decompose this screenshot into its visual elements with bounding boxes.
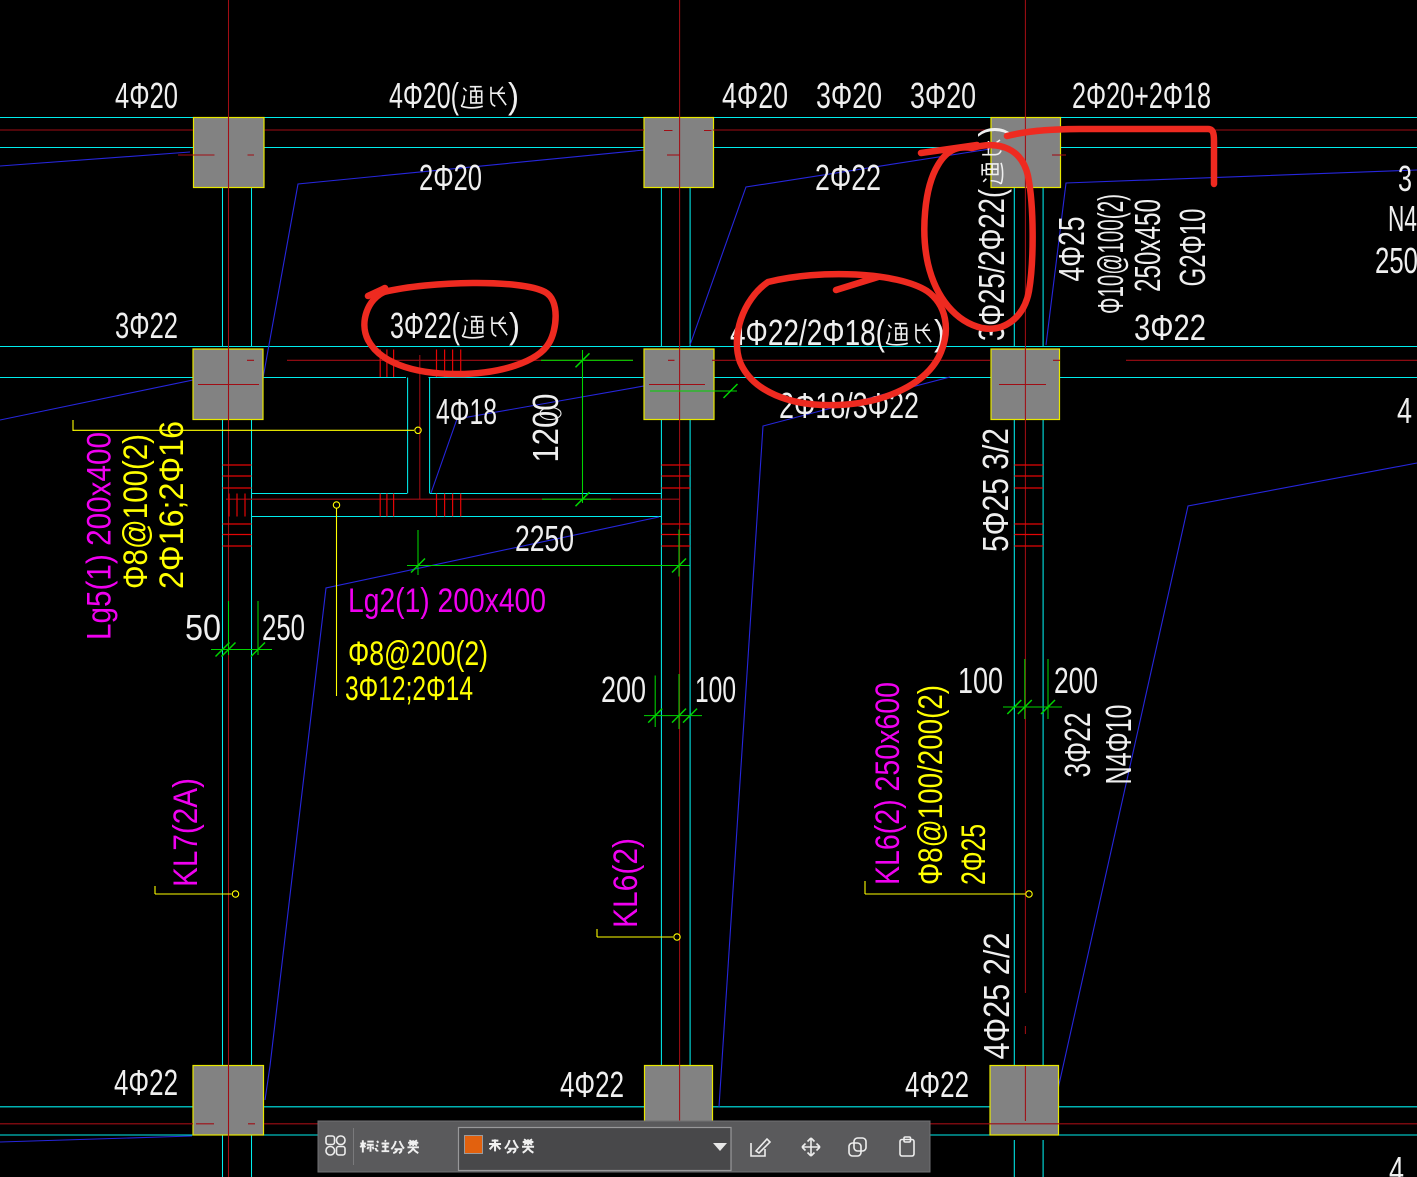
svg-text:250: 250	[1375, 240, 1417, 281]
svg-text:100: 100	[695, 669, 736, 710]
svg-text:): )	[509, 305, 520, 346]
svg-text:200: 200	[1054, 660, 1098, 701]
svg-text:5Φ25 3/2: 5Φ25 3/2	[975, 428, 1016, 552]
svg-text:KL6(2): KL6(2)	[607, 838, 645, 928]
svg-text:3Φ22: 3Φ22	[1134, 307, 1206, 348]
svg-text:2Φ20: 2Φ20	[419, 157, 482, 198]
svg-text:Lg5(1) 200x400: Lg5(1) 200x400	[81, 432, 119, 640]
svg-text:4Φ22: 4Φ22	[560, 1064, 624, 1105]
svg-text:2Φ22: 2Φ22	[815, 157, 881, 198]
svg-text:4: 4	[1389, 1149, 1404, 1177]
svg-text:3Φ22(: 3Φ22(	[390, 305, 460, 346]
svg-text:Φ8@100(2): Φ8@100(2)	[117, 434, 155, 589]
svg-text:4: 4	[1397, 390, 1412, 431]
svg-text:3Φ20: 3Φ20	[816, 75, 882, 116]
svg-text:2Φ16;2Φ16: 2Φ16;2Φ16	[153, 421, 191, 589]
svg-text:250: 250	[262, 607, 305, 648]
svg-text:1200: 1200	[525, 394, 566, 463]
svg-text:4Φ25: 4Φ25	[1051, 217, 1092, 282]
svg-text:4Φ20: 4Φ20	[722, 75, 788, 116]
svg-text:4Φ22: 4Φ22	[905, 1064, 969, 1105]
svg-text:N4Φ10: N4Φ10	[1098, 705, 1139, 785]
svg-text:2Φ25: 2Φ25	[955, 824, 993, 885]
svg-text:100: 100	[958, 660, 1003, 701]
svg-text:2Φ20+2Φ18: 2Φ20+2Φ18	[1072, 75, 1211, 116]
svg-text:3Φ20: 3Φ20	[910, 75, 976, 116]
svg-text:Lg2(1) 200x400: Lg2(1) 200x400	[348, 582, 546, 620]
svg-text:4Φ20: 4Φ20	[115, 75, 178, 116]
svg-text:Φ8@100/200(2): Φ8@100/200(2)	[912, 685, 950, 885]
svg-text:N4: N4	[1388, 198, 1417, 239]
svg-text:50: 50	[185, 607, 221, 648]
svg-text:3Φ12;2Φ14: 3Φ12;2Φ14	[345, 670, 473, 708]
svg-text:200: 200	[601, 669, 646, 710]
svg-text:3: 3	[1398, 158, 1412, 199]
svg-text:4Φ25 2/2: 4Φ25 2/2	[976, 933, 1017, 1060]
svg-text:4Φ22/2Φ18(: 4Φ22/2Φ18(	[730, 312, 885, 353]
svg-text:2250: 2250	[515, 518, 574, 559]
svg-text:4Φ22: 4Φ22	[114, 1062, 178, 1103]
svg-text:4Φ20(: 4Φ20(	[389, 75, 459, 116]
svg-text:3Φ22: 3Φ22	[115, 305, 178, 346]
svg-text:G2Φ10: G2Φ10	[1172, 209, 1213, 287]
svg-text:KL7(2A): KL7(2A)	[167, 778, 205, 887]
svg-text:250x450: 250x450	[1127, 199, 1168, 292]
svg-text:4Φ18: 4Φ18	[436, 391, 497, 432]
svg-text:): )	[508, 75, 519, 116]
svg-text:3Φ25/2Φ22(: 3Φ25/2Φ22(	[971, 189, 1012, 341]
svg-text:KL6(2) 250x600: KL6(2) 250x600	[869, 682, 907, 885]
svg-text:3Φ22: 3Φ22	[1057, 713, 1098, 778]
svg-text:Φ8@200(2): Φ8@200(2)	[348, 635, 488, 673]
svg-text:Φ10@100(2): Φ10@100(2)	[1090, 194, 1131, 314]
